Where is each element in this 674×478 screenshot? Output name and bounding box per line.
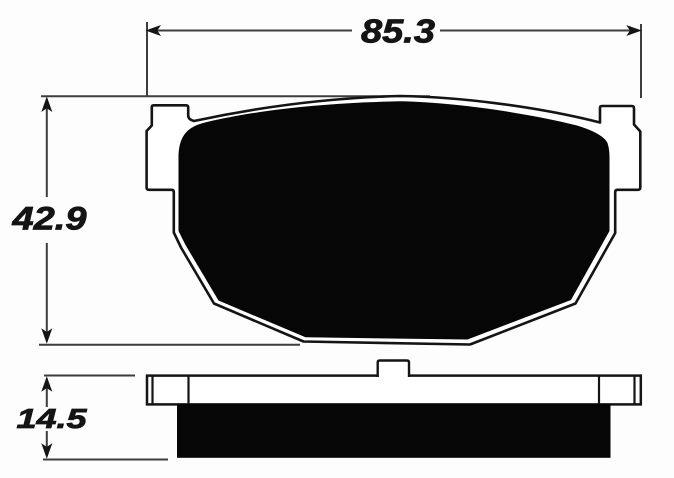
svg-text:42.9: 42.9 [11, 201, 86, 237]
svg-text:85.3: 85.3 [361, 13, 435, 50]
svg-text:14.5: 14.5 [17, 403, 88, 434]
